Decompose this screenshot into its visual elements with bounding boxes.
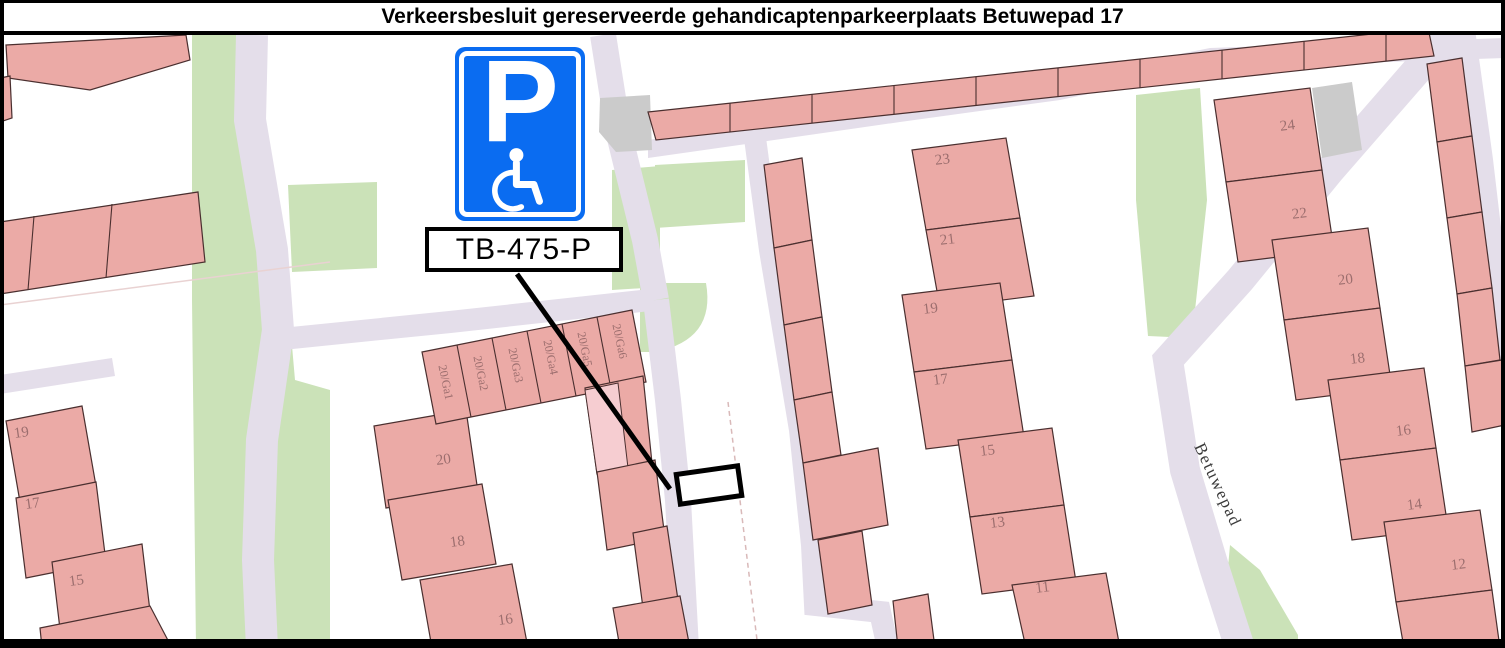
house-number-label: 23 bbox=[934, 151, 951, 169]
house-number-label: 19 bbox=[13, 424, 30, 442]
parking-spot-rectangle bbox=[676, 466, 742, 504]
parcel-boundary-dashed bbox=[728, 402, 758, 639]
border-bottom bbox=[0, 639, 1505, 648]
house-number-label: 16 bbox=[497, 611, 515, 629]
house-number-label: 19 bbox=[922, 300, 939, 318]
map-canvas: 1917152018162321191715131124222018161412… bbox=[0, 35, 1505, 639]
wheelchair-icon bbox=[486, 146, 558, 216]
decision-code-label: TB-475-P bbox=[425, 227, 623, 272]
house-number-label: 15 bbox=[68, 572, 85, 590]
border-top bbox=[0, 0, 1505, 3]
house-number-label: 20 bbox=[1337, 271, 1354, 289]
disabled-parking-sign: P bbox=[455, 47, 585, 221]
house-number-label: 21 bbox=[939, 231, 956, 249]
house-number-label: 24 bbox=[1279, 117, 1296, 135]
border-left bbox=[0, 0, 4, 648]
house-number-label: 20 bbox=[435, 451, 452, 469]
house-number-label: 17 bbox=[932, 371, 949, 389]
house-number-label: 13 bbox=[989, 514, 1006, 532]
house-number-label: 22 bbox=[1291, 205, 1308, 223]
page-title: Verkeersbesluit gereserveerde gehandicap… bbox=[4, 3, 1501, 31]
border-right bbox=[1501, 0, 1505, 648]
parking-sign-letter: P bbox=[455, 41, 585, 163]
house-number-label: 11 bbox=[1034, 579, 1050, 597]
house-number-label: 17 bbox=[24, 495, 42, 513]
house-number-label: 18 bbox=[1349, 350, 1366, 368]
house-number-label: 18 bbox=[449, 533, 466, 551]
map-page: Verkeersbesluit gereserveerde gehandicap… bbox=[0, 0, 1505, 648]
house-number-label: 16 bbox=[1395, 422, 1412, 440]
house-number-label: 15 bbox=[979, 442, 996, 460]
house-number-label: 14 bbox=[1406, 496, 1423, 514]
house-number-label: 12 bbox=[1450, 556, 1467, 574]
